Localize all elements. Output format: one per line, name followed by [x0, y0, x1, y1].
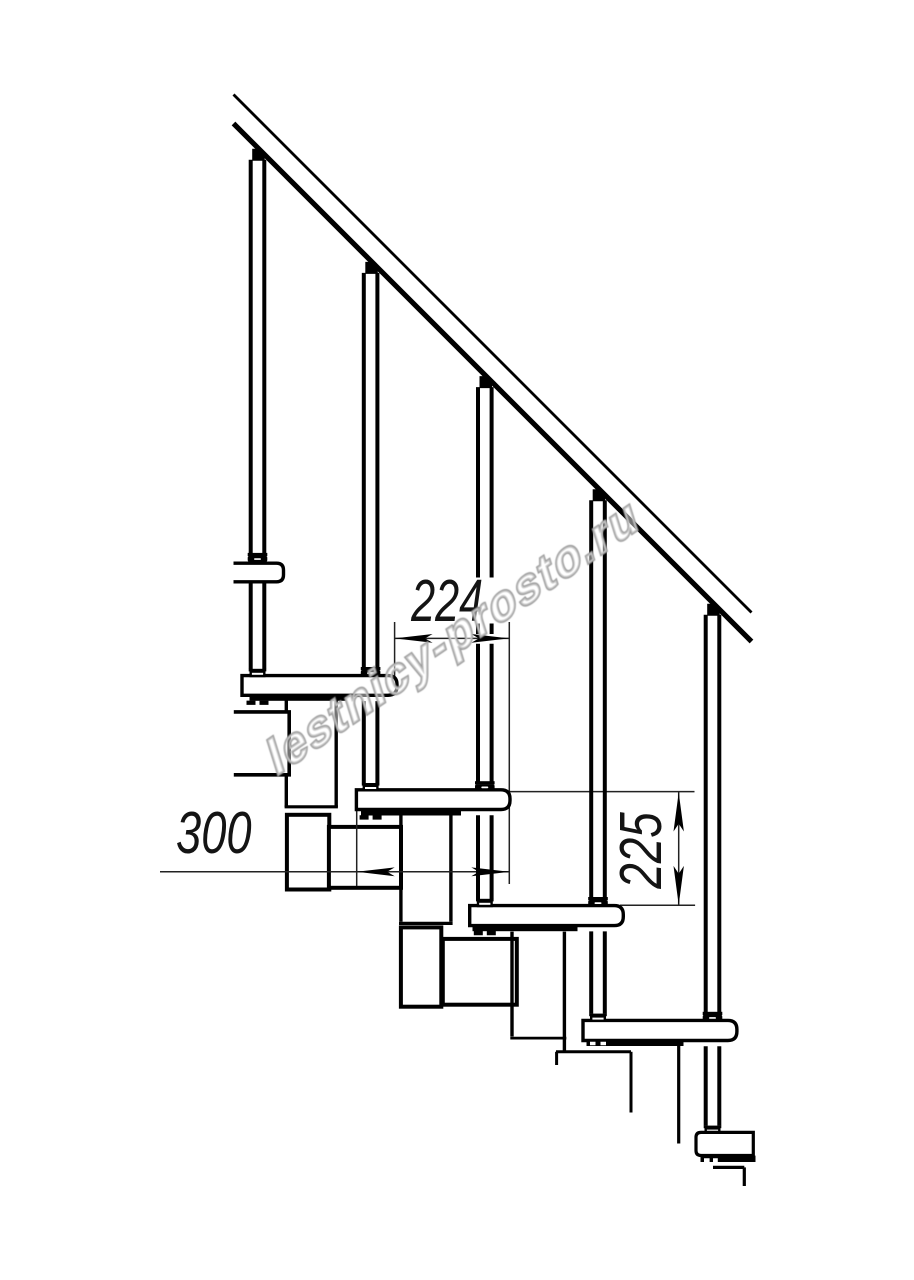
svg-text:225: 225	[608, 812, 674, 890]
svg-text:300: 300	[176, 800, 252, 867]
